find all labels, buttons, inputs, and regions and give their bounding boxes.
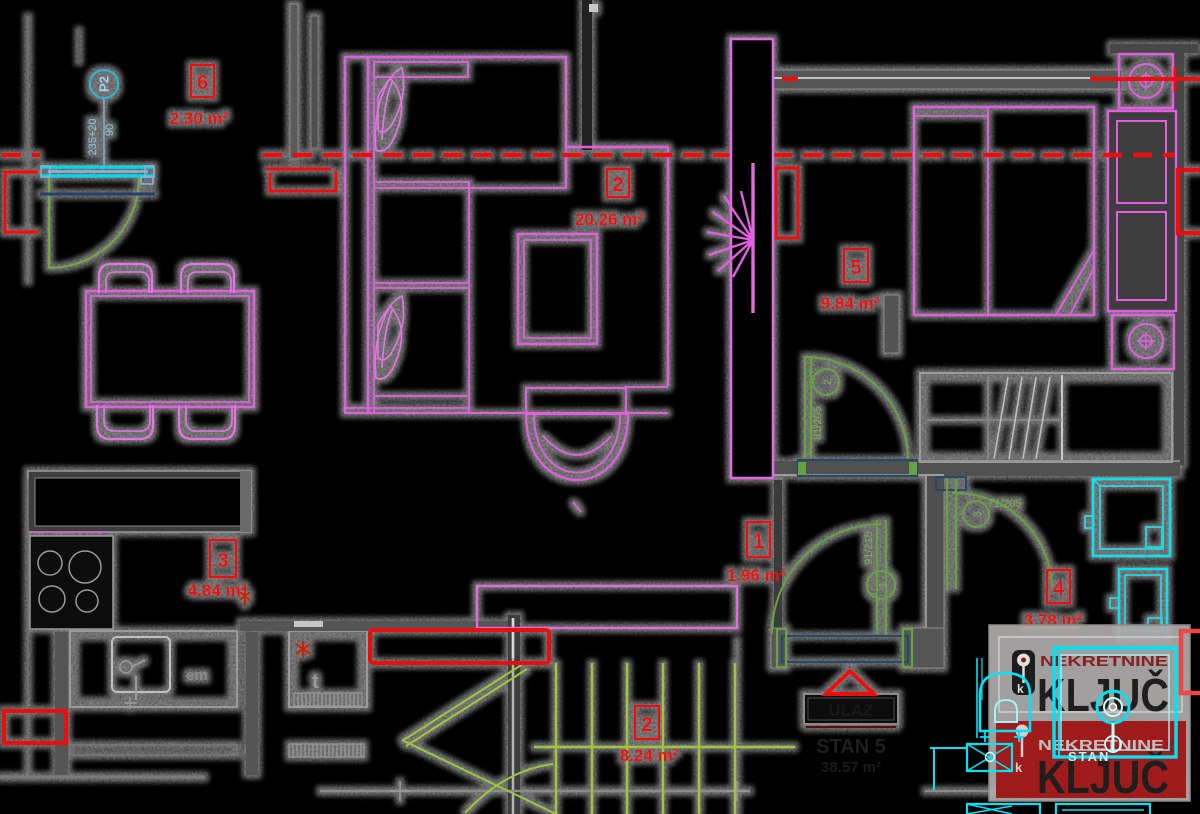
svg-text:3: 3 [217, 550, 228, 572]
svg-text:38.57 m²: 38.57 m² [821, 759, 881, 776]
svg-text:20.26 m²: 20.26 m² [575, 210, 643, 229]
svg-text:2: 2 [641, 714, 652, 736]
svg-text:4.84 m²: 4.84 m² [188, 581, 247, 600]
svg-text:STAN: STAN [1068, 749, 1110, 764]
svg-text:2: 2 [822, 379, 834, 385]
svg-text:ULAZ: ULAZ [828, 701, 873, 720]
svg-text:2.30 m²: 2.30 m² [170, 109, 229, 128]
svg-text:71/205: 71/205 [988, 498, 1022, 510]
svg-text:1: 1 [877, 582, 889, 588]
svg-text:4: 4 [1053, 578, 1065, 600]
svg-text:8.24 m²: 8.24 m² [620, 746, 679, 765]
svg-text:2: 2 [612, 174, 623, 196]
svg-text:em: em [186, 667, 208, 684]
svg-text:90: 90 [104, 124, 116, 136]
svg-text:P2: P2 [97, 76, 112, 92]
svg-text:91/215: 91/215 [863, 531, 875, 565]
svg-text:STAN 5: STAN 5 [816, 736, 886, 758]
svg-text:81/205: 81/205 [812, 406, 824, 440]
svg-text:235+20: 235+20 [87, 118, 99, 155]
svg-text:t: t [312, 671, 319, 693]
svg-text:1: 1 [753, 531, 764, 553]
svg-text:5: 5 [850, 257, 861, 279]
svg-text:1.96 m²: 1.96 m² [727, 566, 786, 585]
svg-text:6: 6 [197, 72, 208, 94]
svg-text:9.84 m²: 9.84 m² [821, 294, 880, 313]
svg-text:3: 3 [972, 511, 984, 517]
